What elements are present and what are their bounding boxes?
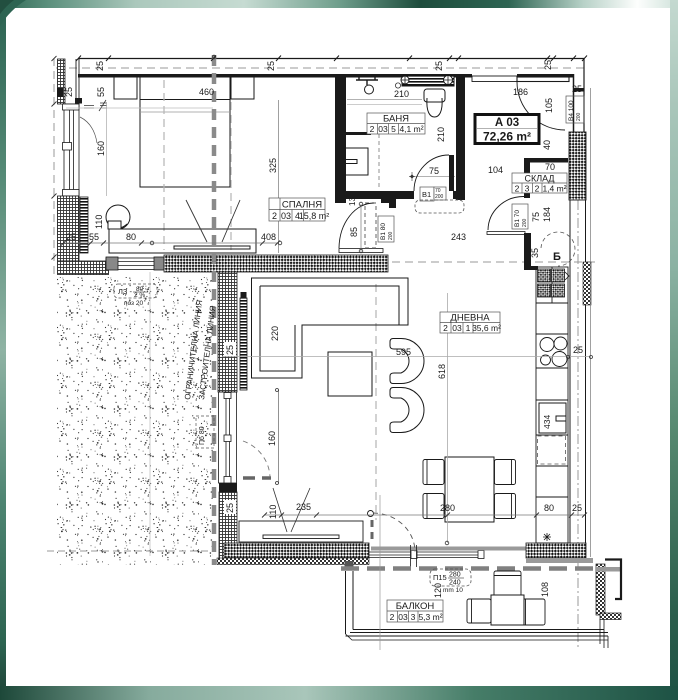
svg-text:5: 5	[391, 124, 396, 134]
svg-text:Б: Б	[553, 251, 561, 263]
svg-text:55: 55	[96, 87, 106, 97]
svg-text:4,1 m²: 4,1 m²	[399, 124, 423, 134]
svg-text:200: 200	[388, 231, 394, 240]
svg-text:2: 2	[390, 612, 395, 622]
svg-text:ЛЗ -: ЛЗ -	[118, 287, 133, 296]
svg-text:72,26 m²: 72,26 m²	[483, 130, 531, 144]
svg-text:1,4 m²: 1,4 m²	[542, 184, 566, 194]
svg-text:А 03: А 03	[495, 117, 519, 129]
svg-text:104: 104	[488, 165, 503, 175]
svg-text:mm 10: mm 10	[443, 587, 463, 594]
svg-text:460: 460	[199, 87, 214, 97]
svg-text:105: 105	[544, 98, 554, 113]
svg-text:03: 03	[398, 612, 408, 622]
svg-text:B1 80: B1 80	[380, 223, 387, 240]
svg-text:25: 25	[543, 60, 553, 70]
svg-text:13: 13	[348, 197, 357, 206]
svg-text:В4 100: В4 100	[568, 100, 575, 121]
svg-text:434: 434	[542, 415, 552, 429]
svg-text:2: 2	[515, 184, 520, 194]
svg-text:2: 2	[272, 211, 277, 221]
svg-text:184: 184	[542, 207, 552, 222]
svg-text:618: 618	[437, 364, 447, 379]
svg-text:СКЛАД: СКЛАД	[524, 174, 554, 184]
svg-text:03: 03	[378, 124, 388, 134]
svg-text:B1 70: B1 70	[514, 210, 521, 227]
svg-text:25: 25	[66, 232, 76, 242]
svg-text:200: 200	[576, 112, 582, 121]
svg-text:325: 325	[268, 158, 278, 173]
svg-text:40: 40	[542, 140, 552, 150]
svg-text:25: 25	[434, 61, 444, 71]
svg-text:75: 75	[531, 212, 541, 222]
svg-text:3: 3	[525, 184, 530, 194]
svg-text:108: 108	[540, 582, 550, 597]
svg-text:03: 03	[281, 211, 291, 221]
svg-text:2: 2	[443, 323, 448, 333]
svg-text:220: 220	[270, 326, 280, 341]
svg-text:80: 80	[126, 232, 136, 242]
svg-text:2 %: 2 %	[134, 292, 145, 299]
svg-text:110: 110	[268, 505, 278, 519]
svg-text:СПАЛНЯ: СПАЛНЯ	[282, 200, 322, 211]
svg-text:243: 243	[451, 232, 466, 242]
svg-text:1: 1	[466, 323, 471, 333]
svg-text:120: 120	[433, 583, 443, 598]
svg-text:210: 210	[394, 89, 409, 99]
svg-text:25: 25	[225, 503, 235, 513]
svg-text:B1: B1	[422, 190, 431, 199]
svg-text:ДНЕВНА: ДНЕВНА	[450, 313, 490, 324]
svg-text:2: 2	[370, 124, 375, 134]
svg-text:80: 80	[544, 503, 554, 513]
svg-text:408: 408	[261, 232, 276, 242]
svg-text:235: 235	[296, 502, 311, 512]
svg-text:75: 75	[429, 166, 439, 176]
svg-text:70: 70	[545, 162, 555, 172]
svg-text:25: 25	[572, 84, 582, 94]
svg-text:160: 160	[96, 141, 106, 156]
svg-text:186: 186	[513, 87, 528, 97]
svg-text:55: 55	[89, 232, 99, 242]
svg-text:БАЛКОН: БАЛКОН	[396, 601, 435, 612]
svg-text:595: 595	[396, 347, 411, 357]
svg-text:БАНЯ: БАНЯ	[383, 114, 409, 125]
svg-text:2: 2	[535, 184, 540, 194]
svg-text:25: 25	[266, 61, 276, 71]
svg-text:200: 200	[435, 194, 444, 200]
svg-text:280: 280	[440, 503, 455, 513]
svg-text:240: 240	[449, 580, 461, 587]
svg-text:160: 160	[267, 431, 277, 446]
svg-text:210: 210	[436, 127, 446, 142]
svg-text:110: 110	[94, 215, 104, 229]
svg-text:П15: П15	[433, 573, 447, 582]
svg-text:5,3 m²: 5,3 m²	[418, 612, 442, 622]
svg-text:поз 20: поз 20	[124, 300, 143, 307]
svg-text:280: 280	[449, 572, 461, 579]
svg-text:25: 25	[64, 87, 74, 97]
svg-text:3: 3	[411, 612, 416, 622]
svg-text:35: 35	[530, 248, 540, 258]
svg-text:25: 25	[573, 345, 583, 355]
svg-text:200: 200	[522, 218, 528, 227]
svg-text:25: 25	[225, 345, 235, 355]
svg-text:П6 80: П6 80	[199, 426, 206, 445]
svg-text:85: 85	[349, 227, 359, 237]
svg-text:35,6 m²: 35,6 m²	[472, 323, 501, 333]
svg-text:03: 03	[452, 323, 462, 333]
svg-text:15,8 m²: 15,8 m²	[299, 211, 330, 221]
svg-text:25: 25	[572, 503, 582, 513]
svg-text:25: 25	[95, 61, 105, 71]
